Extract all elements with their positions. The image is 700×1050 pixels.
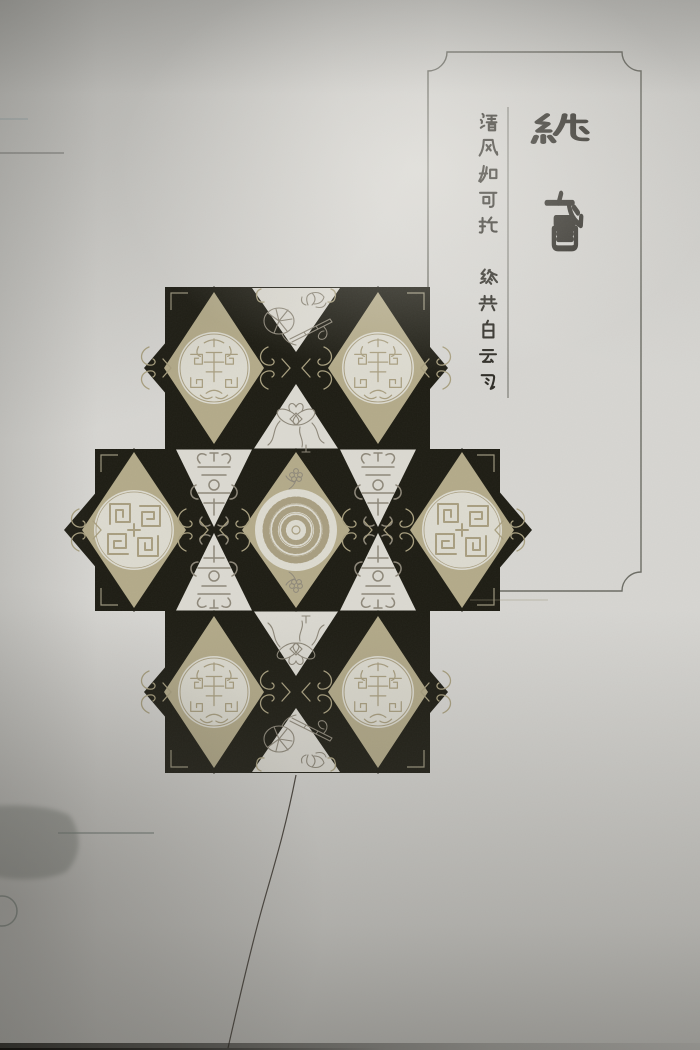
photo-of-kite-poster: 紙鳶 清风如可托 终共白云飞 — [0, 0, 700, 1050]
paper-grain-texture — [0, 0, 700, 1050]
poster-artwork — [0, 0, 700, 1050]
